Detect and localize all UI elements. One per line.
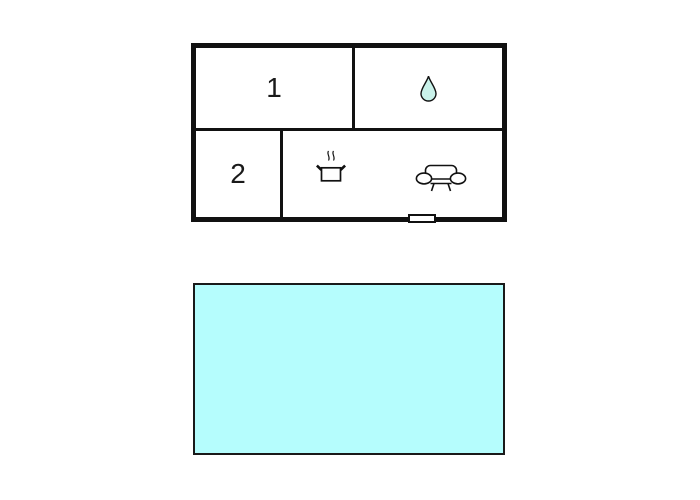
cooking-pot-icon: [316, 150, 346, 184]
bathroom: [355, 48, 502, 128]
room-2-label: 2: [230, 160, 246, 188]
room-1: 1: [196, 48, 352, 128]
floor-plan: 1 2: [191, 43, 507, 222]
kitchen-living-area: [283, 131, 502, 217]
door-marker: [408, 214, 436, 223]
room-2: 2: [196, 131, 280, 217]
pool: [193, 283, 505, 455]
floorplan-diagram: 1 2: [0, 0, 700, 500]
room-1-label: 1: [266, 74, 282, 102]
sofa-icon: [415, 163, 467, 193]
water-drop-icon: [420, 75, 437, 102]
water-drop-shape: [421, 76, 436, 101]
